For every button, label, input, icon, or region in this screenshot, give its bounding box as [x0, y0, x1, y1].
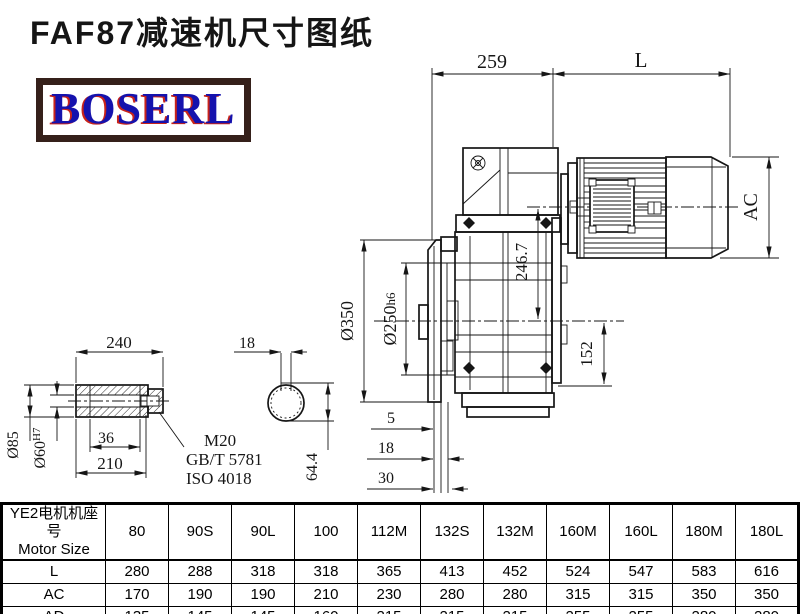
table-cell: 280	[106, 560, 169, 583]
table-cell: 280	[484, 583, 547, 606]
table-cell: 318	[295, 560, 358, 583]
motor-column-header: 100	[295, 504, 358, 561]
table-row: L280288318318365413452524547583616	[2, 560, 799, 583]
dimension-lines	[364, 74, 769, 489]
leader-m20-label: M20	[204, 431, 236, 450]
dim-flange-od-label: Ø350	[337, 301, 357, 341]
dim-210-label: 210	[97, 454, 123, 473]
table-cell: 288	[169, 560, 232, 583]
table-cell: 255	[610, 606, 673, 614]
table-cell: 135	[106, 606, 169, 614]
output-flange	[419, 237, 458, 493]
table-cell: 524	[547, 560, 610, 583]
motor-column-header: 160M	[547, 504, 610, 561]
motor-size-header-cn: YE2电机机座号	[3, 505, 105, 541]
table-cell: 210	[295, 583, 358, 606]
main-view: 259 L AC 246.7 152 Ø350 Ø250h6 5 18 30	[337, 48, 779, 493]
dim-30-label: 30	[378, 470, 394, 487]
table-cell: 215	[484, 606, 547, 614]
table-cell: 413	[421, 560, 484, 583]
row-label: AC	[2, 583, 106, 606]
dim-AC-label: AC	[740, 193, 762, 221]
motor-column-header: 90S	[169, 504, 232, 561]
table-cell: 350	[673, 583, 736, 606]
table-cell: 280	[736, 606, 799, 614]
table-cell: 145	[169, 606, 232, 614]
hollow-shaft	[68, 385, 171, 417]
dim-85-label: Ø85	[5, 431, 22, 459]
leader-gbt-label: GB/T 5781	[186, 450, 263, 469]
leader-iso-label: ISO 4018	[186, 469, 252, 488]
motor-column-header: 132S	[421, 504, 484, 561]
extension-lines	[360, 68, 779, 402]
table-row: AC170190190210230280280315315350350	[2, 583, 799, 606]
table-cell: 190	[232, 583, 295, 606]
dim-60h7-label: Ø60H7	[31, 427, 49, 469]
dim-5-label: 5	[387, 410, 395, 427]
section-extension-lines	[286, 383, 334, 421]
shaft-detail-view: 240 Ø85 Ø60H7 36 210 M20 GB/T 5781 ISO 4…	[5, 333, 263, 488]
table-cell: 315	[547, 583, 610, 606]
dim-key-depth-label: 64.4	[304, 453, 321, 481]
dimension-drawing: 259 L AC 246.7 152 Ø350 Ø250h6 5 18 30	[0, 0, 800, 502]
dim-18-label: 18	[378, 440, 394, 457]
motor-size-table: YE2电机机座号Motor Size8090S90L100112M132S132…	[0, 502, 800, 614]
table-cell: 365	[358, 560, 421, 583]
table-cell: 318	[232, 560, 295, 583]
table-cell: 160	[295, 606, 358, 614]
dim-246-7-label: 246.7	[512, 242, 531, 281]
dim-240-label: 240	[106, 333, 132, 352]
dim-36-label: 36	[98, 430, 114, 447]
motor-column-header: 132M	[484, 504, 547, 561]
table-cell: 547	[610, 560, 673, 583]
table-cell: 190	[169, 583, 232, 606]
motor-column-header: 160L	[610, 504, 673, 561]
row-label: AD	[2, 606, 106, 614]
table-cell: 280	[421, 583, 484, 606]
dim-L-label: L	[635, 48, 648, 72]
table-cell: 170	[106, 583, 169, 606]
page: FAF87减速机尺寸图纸 BOSERL	[0, 0, 800, 614]
fan-cowl	[666, 157, 728, 258]
motor-column-header: 80	[106, 504, 169, 561]
table-row: AD135145145160215215215255255280280	[2, 606, 799, 614]
bore-circle	[268, 385, 304, 421]
motor-column-header: 112M	[358, 504, 421, 561]
motor-size-header-en: Motor Size	[3, 541, 105, 559]
row-label: L	[2, 560, 106, 583]
table-cell: 583	[673, 560, 736, 583]
bolt-symbols	[463, 156, 552, 374]
table-cell: 315	[610, 583, 673, 606]
motor-size-header-cell: YE2电机机座号Motor Size	[2, 504, 106, 561]
motor-column-header: 180L	[736, 504, 799, 561]
table-cell: 215	[358, 606, 421, 614]
motor-column-header: 180M	[673, 504, 736, 561]
table-header-row: YE2电机机座号Motor Size8090S90L100112M132S132…	[2, 504, 799, 561]
dim-259-label: 259	[477, 51, 507, 73]
table-cell: 616	[736, 560, 799, 583]
table-cell: 145	[232, 606, 295, 614]
motor	[561, 157, 728, 258]
dim-152-label: 152	[577, 341, 596, 367]
dim-key-width-label: 18	[239, 335, 255, 352]
gearbox-outline	[455, 148, 567, 417]
table-cell: 255	[547, 606, 610, 614]
table-cell: 452	[484, 560, 547, 583]
motor-column-header: 90L	[232, 504, 295, 561]
table-cell: 230	[358, 583, 421, 606]
dim-pilot-label: Ø250h6	[380, 292, 400, 346]
table-cell: 215	[421, 606, 484, 614]
table-cell: 350	[736, 583, 799, 606]
table-cell: 280	[673, 606, 736, 614]
